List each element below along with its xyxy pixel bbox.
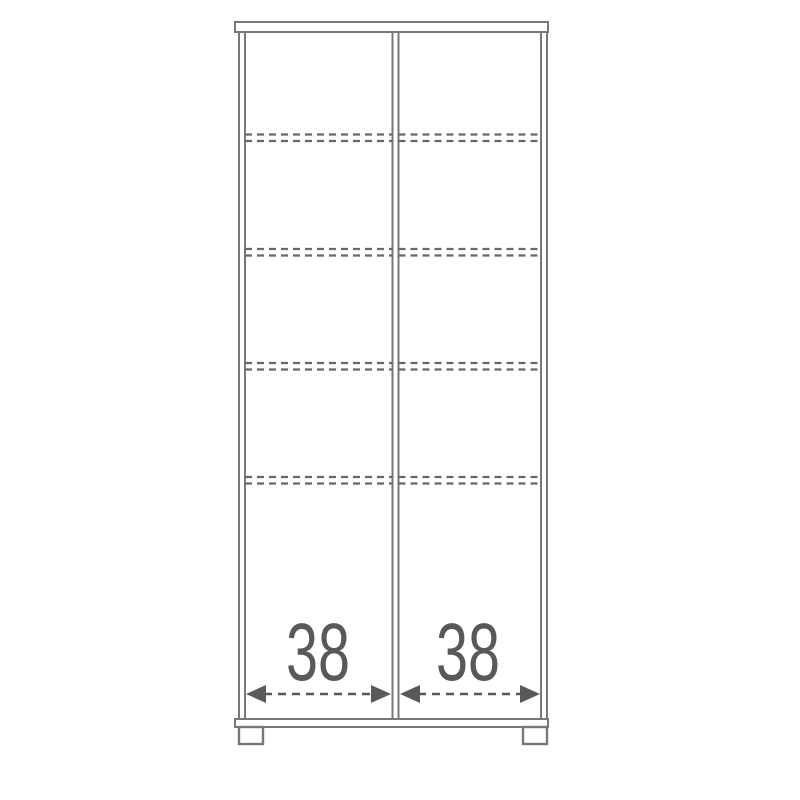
- background: [0, 0, 800, 800]
- page: 3838: [0, 0, 800, 800]
- dimension-label-left: 38: [286, 607, 350, 698]
- bottom-panel: [235, 719, 548, 727]
- left-foot: [239, 727, 263, 744]
- cabinet-dimension-diagram: 3838: [0, 0, 800, 800]
- dimension-label-right: 38: [436, 607, 500, 698]
- right-foot: [523, 727, 547, 744]
- top-panel: [235, 22, 548, 32]
